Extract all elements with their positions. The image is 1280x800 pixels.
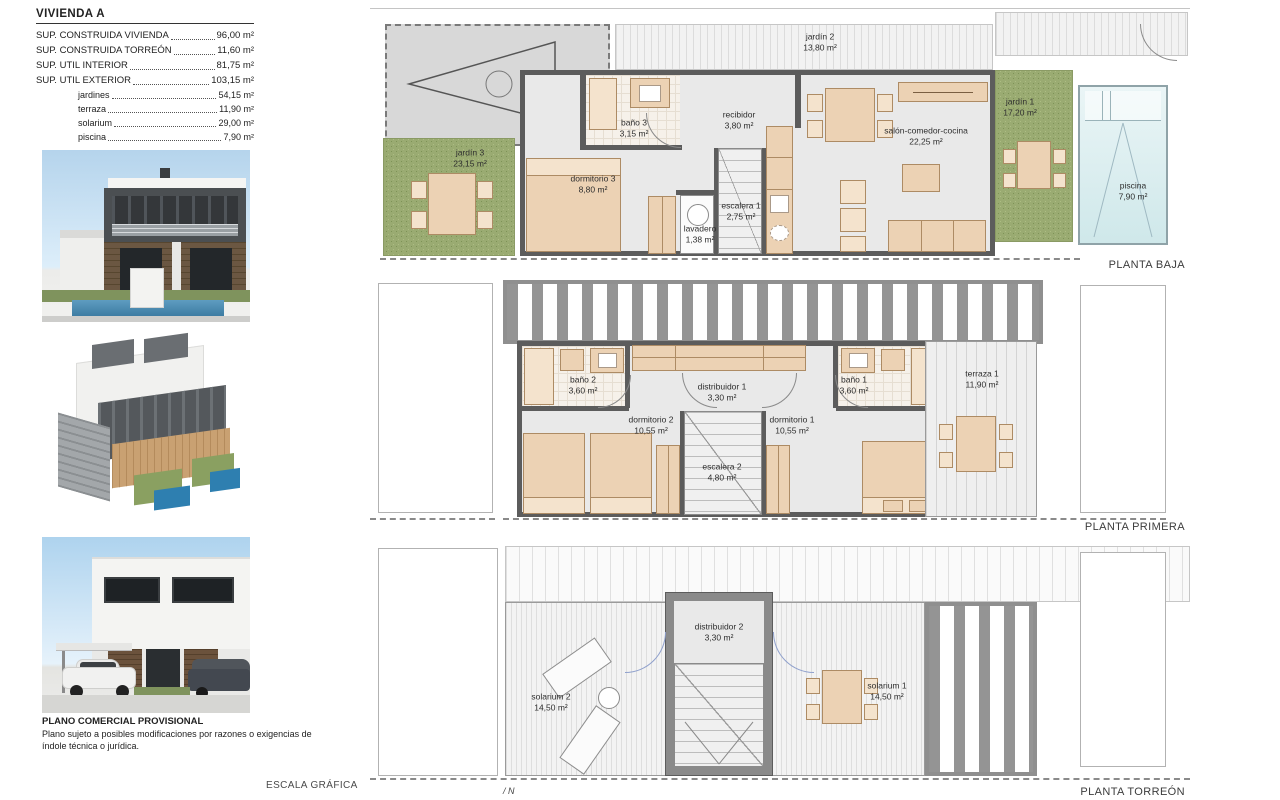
kitchen-counter	[766, 126, 793, 254]
spec-row-construida-torreon: SUP. CONSTRUIDA TORREÓN11,60 m²	[36, 43, 254, 58]
plan-title-planta-primera: PLANTA PRIMERA	[1085, 521, 1185, 533]
room-label-solarium-1: solarium 114,50 m²	[867, 680, 906, 701]
sideboard-furniture	[898, 82, 988, 102]
room-label-piscina: piscina7,90 m²	[1119, 180, 1148, 201]
page-title: VIVIENDA A	[36, 8, 254, 24]
sofa-furniture	[888, 220, 986, 252]
armchair-furniture	[840, 180, 866, 204]
spec-row-util-interior: SUP. UTIL INTERIOR81,75 m²	[36, 58, 254, 73]
room-label-jardin-3: jardín 323,15 m²	[453, 147, 487, 168]
spec-row-construida-vivienda: SUP. CONSTRUIDA VIVIENDA96,00 m²	[36, 28, 254, 43]
room-label-distribuidor-1: distribuidor 13,30 m²	[698, 381, 747, 402]
room-label-dormitorio-2: dormitorio 210,55 m²	[629, 414, 674, 435]
room-label-dormitorio-3: dormitorio 38,80 m²	[571, 173, 616, 194]
render-aerial-view-image	[42, 332, 250, 516]
bed-furniture	[523, 433, 585, 514]
coffee-table-furniture	[902, 164, 940, 192]
room-label-bano-2: baño 23,60 m²	[569, 374, 598, 395]
pergola-slats-band	[925, 602, 1037, 776]
floor-plan-planta-baja: jardín 213,80 m² jardín 323,15 m² baño 3…	[370, 8, 1190, 274]
floor-plan-planta-primera: baño 23,60 m² distribuidor 13,30 m² baño…	[370, 275, 1190, 533]
room-label-bano-3: baño 33,15 m²	[620, 117, 649, 138]
sink-fixture	[630, 78, 670, 108]
room-label-lavadero: lavadero1,38 m²	[684, 223, 717, 244]
adjacent-plot-outline	[1080, 552, 1166, 767]
room-label-solarium-2: solarium 214,50 m²	[531, 691, 570, 712]
spec-row-terraza: terraza11,90 m²	[36, 102, 254, 116]
plan-sheet: VIVIENDA A SUP. CONSTRUIDA VIVIENDA96,00…	[0, 0, 1280, 800]
room-label-distribuidor-2: distribuidor 23,30 m²	[695, 621, 744, 642]
garden-3-area	[383, 138, 515, 256]
render-street-view-image	[42, 537, 250, 713]
wardrobe-furniture	[766, 445, 790, 514]
title-block: VIVIENDA A SUP. CONSTRUIDA VIVIENDA96,00…	[36, 8, 254, 144]
bed-furniture	[526, 158, 621, 252]
plan-title-planta-torreon: PLANTA TORREÓN	[1080, 786, 1185, 798]
adjacent-plot-outline	[1080, 285, 1166, 513]
room-label-bano-1: baño 13,60 m²	[840, 374, 869, 395]
floor-plan-planta-torreon: solarium 214,50 m² distribuidor 23,30 m²…	[370, 540, 1190, 798]
adjacent-plot-outline	[378, 548, 498, 776]
spec-row-solarium: solarium29,00 m²	[36, 116, 254, 130]
room-label-dormitorio-1: dormitorio 110,55 m²	[770, 414, 815, 435]
disclaimer: PLANO COMERCIAL PROVISIONAL Plano sujeto…	[42, 716, 327, 753]
armchair-furniture	[840, 208, 866, 232]
wardrobe-band	[632, 345, 806, 371]
side-table	[598, 687, 620, 709]
bed-furniture	[590, 433, 652, 514]
plan-title-planta-baja: PLANTA BAJA	[1109, 259, 1185, 271]
spec-row-piscina: piscina7,90 m²	[36, 130, 254, 144]
armchair-furniture	[840, 236, 866, 252]
bathtub-fixture	[589, 78, 617, 130]
dining-table-furniture	[825, 88, 875, 142]
room-label-escalera-1: escalera 12,75 m²	[721, 200, 760, 221]
room-label-jardin-1: jardín 117,20 m²	[1003, 96, 1037, 117]
room-label-escalera-2: escalera 24,80 m²	[702, 461, 741, 482]
room-label-jardin-2: jardín 213,80 m²	[803, 31, 837, 52]
wardrobe-furniture	[648, 196, 676, 254]
disclaimer-title: PLANO COMERCIAL PROVISIONAL	[42, 716, 327, 728]
pool-area	[1078, 85, 1168, 245]
room-label-recibidor: recibidor3,80 m²	[723, 109, 756, 130]
adjacent-plot-outline	[378, 283, 493, 513]
wardrobe-furniture	[656, 445, 680, 514]
outdoor-table-furniture	[822, 670, 862, 724]
graphic-scale-label: ESCALA GRÁFICA	[266, 780, 358, 791]
pergola-slats-band	[503, 280, 1043, 344]
room-label-terraza-1: terraza 111,90 m²	[965, 368, 999, 389]
tower-staircase-area	[674, 663, 764, 767]
disclaimer-body: Plano sujeto a posibles modificaciones p…	[42, 729, 312, 751]
render-front-view-image	[42, 150, 250, 322]
spec-row-jardines: jardines54,15 m²	[36, 88, 254, 102]
spec-row-util-exterior: SUP. UTIL EXTERIOR103,15 m²	[36, 73, 254, 88]
room-label-salon-comedor-cocina: salón-comedor-cocina22,25 m²	[884, 125, 968, 146]
